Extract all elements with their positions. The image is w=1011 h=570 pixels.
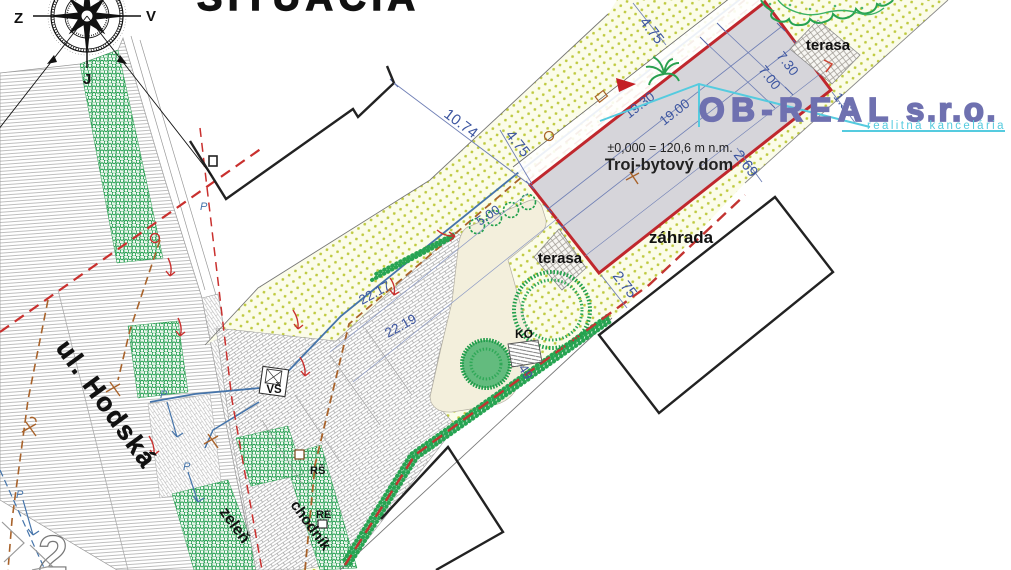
svg-text:J: J (83, 71, 91, 88)
svg-text:SITUÁCIA: SITUÁCIA (197, 0, 420, 19)
svg-text:±0,000 = 120,6 m n.m.: ±0,000 = 120,6 m n.m. (607, 141, 732, 155)
svg-text:P: P (16, 489, 24, 501)
svg-text:OB-REAL: OB-REAL (699, 91, 895, 128)
svg-text:P: P (160, 389, 168, 401)
svg-text:Z: Z (14, 10, 23, 27)
svg-text:KO: KO (515, 327, 533, 341)
svg-text:RE: RE (316, 509, 331, 521)
svg-text:záhrada: záhrada (649, 228, 714, 247)
svg-text:P: P (183, 461, 191, 473)
svg-text:P: P (200, 201, 208, 213)
svg-text:terasa: terasa (538, 250, 583, 267)
svg-text:RŠ: RŠ (310, 464, 325, 477)
svg-text:V: V (146, 8, 156, 25)
svg-text:Troj-bytový dom: Troj-bytový dom (605, 156, 733, 174)
svg-text:terasa: terasa (806, 37, 851, 54)
svg-text:2: 2 (38, 525, 68, 570)
svg-text:realitná kancelária: realitná kancelária (867, 120, 1006, 132)
svg-text:VŠ: VŠ (266, 383, 282, 396)
